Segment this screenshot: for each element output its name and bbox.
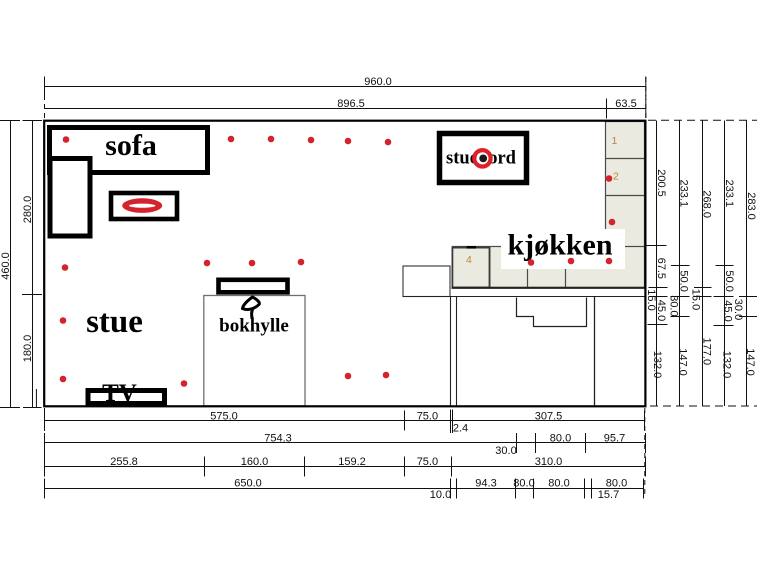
svg-text:268.0: 268.0: [701, 190, 713, 218]
svg-text:45.0: 45.0: [655, 300, 667, 321]
svg-text:159.2: 159.2: [338, 456, 366, 468]
svg-text:233.1: 233.1: [723, 180, 735, 208]
svg-text:80.0: 80.0: [550, 432, 571, 444]
svg-text:896.5: 896.5: [337, 98, 365, 110]
svg-text:307.5: 307.5: [535, 410, 563, 422]
svg-text:160.0: 160.0: [241, 456, 269, 468]
svg-text:310.0: 310.0: [535, 456, 563, 468]
svg-text:30.0: 30.0: [732, 299, 744, 320]
svg-text:4: 4: [466, 254, 472, 266]
svg-text:67.5: 67.5: [655, 258, 667, 279]
svg-text:200.5: 200.5: [655, 169, 667, 197]
svg-text:80.0: 80.0: [548, 478, 569, 490]
svg-text:283.0: 283.0: [745, 192, 757, 220]
svg-text:10.0: 10.0: [430, 489, 451, 501]
svg-text:75.0: 75.0: [417, 456, 438, 468]
svg-text:280.0: 280.0: [22, 196, 34, 224]
svg-text:stue: stue: [86, 304, 143, 340]
svg-text:2: 2: [613, 171, 619, 183]
svg-text:2.4: 2.4: [453, 423, 468, 435]
svg-text:754.3: 754.3: [264, 432, 292, 444]
svg-text:575.0: 575.0: [210, 410, 238, 422]
svg-text:255.8: 255.8: [110, 456, 138, 468]
svg-text:132.0: 132.0: [721, 351, 733, 379]
svg-text:1: 1: [612, 135, 618, 147]
svg-text:147.0: 147.0: [677, 348, 689, 376]
svg-text:45.0: 45.0: [721, 300, 733, 321]
svg-text:50.0: 50.0: [678, 270, 690, 291]
svg-text:TV: TV: [102, 380, 137, 407]
svg-text:30.0: 30.0: [495, 445, 516, 457]
svg-text:30.0: 30.0: [668, 295, 680, 316]
svg-text:650.0: 650.0: [234, 478, 262, 490]
svg-text:94.3: 94.3: [475, 478, 496, 490]
svg-text:180.0: 180.0: [22, 335, 34, 363]
svg-text:177.0: 177.0: [701, 338, 713, 366]
svg-text:95.7: 95.7: [604, 432, 625, 444]
svg-text:50.0: 50.0: [723, 270, 735, 291]
svg-text:15.0: 15.0: [689, 289, 701, 310]
svg-text:80.0: 80.0: [606, 478, 627, 490]
svg-text:kjøkken: kjøkken: [507, 229, 612, 262]
svg-text:960.0: 960.0: [364, 76, 392, 88]
svg-text:75.0: 75.0: [417, 410, 438, 422]
svg-text:460.0: 460.0: [0, 252, 12, 280]
svg-text:147.0: 147.0: [744, 348, 756, 376]
svg-text:63.5: 63.5: [615, 98, 636, 110]
svg-text:sofa: sofa: [105, 129, 157, 162]
svg-text:80.0: 80.0: [513, 478, 534, 490]
svg-text:233.1: 233.1: [678, 180, 690, 208]
svg-text:15.7: 15.7: [598, 489, 619, 501]
svg-text:bokhylle: bokhylle: [219, 316, 289, 337]
svg-text:132.0: 132.0: [651, 351, 663, 379]
